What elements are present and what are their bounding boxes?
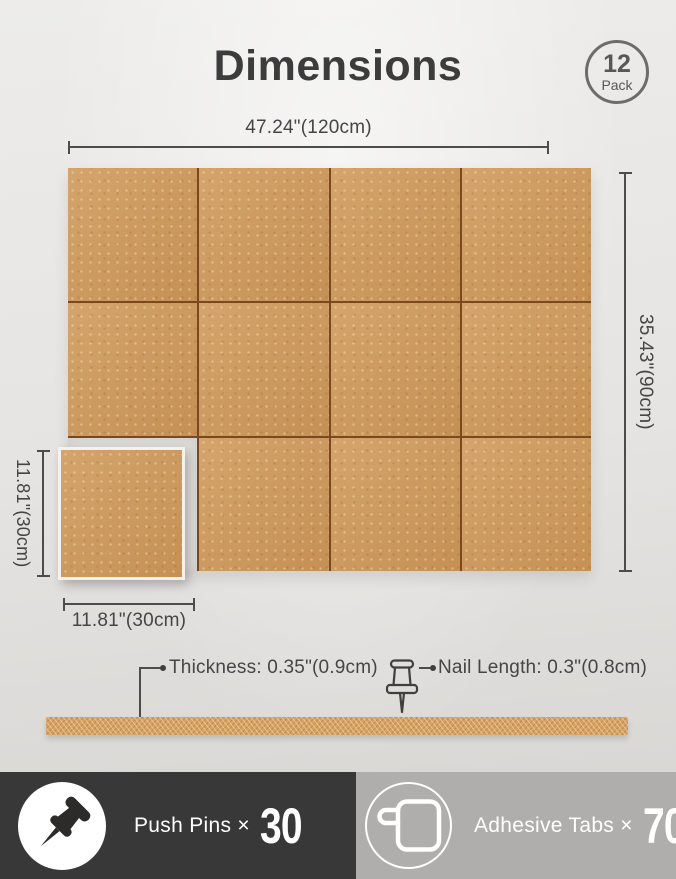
- cork-tile: [462, 438, 591, 571]
- push-pin-outline-icon: [382, 659, 422, 719]
- push-pin-icon-circle: [18, 782, 106, 870]
- cork-tile: [199, 303, 328, 436]
- cork-tile: [462, 303, 591, 436]
- tile-height-label: 11.81"(30cm): [12, 450, 33, 577]
- cork-tile: [331, 168, 460, 301]
- push-pins-section: Push Pins × 30: [0, 772, 356, 879]
- board-width-label: 47.24"(120cm): [68, 117, 549, 139]
- cork-tile: [462, 168, 591, 301]
- board-width-dimension-line: [68, 146, 549, 148]
- included-items-bar: Push Pins × 30 Adhesive Tabs × 70: [0, 772, 676, 879]
- tile-width-label: 11.81"(30cm): [39, 610, 219, 632]
- cork-strip-side-view: [46, 717, 628, 735]
- adhesive-tabs-count: 70: [643, 801, 676, 851]
- adhesive-tab-icon: [376, 799, 442, 853]
- thickness-leader-dot: [160, 665, 166, 671]
- thickness-leader-line: [139, 667, 161, 669]
- nail-length-label: Nail Length: 0.3"(0.8cm): [438, 657, 647, 679]
- cork-tile: [331, 438, 460, 571]
- nail-leader-dot: [430, 665, 436, 671]
- pack-label: Pack: [601, 78, 632, 92]
- push-pins-count: 30: [260, 801, 302, 851]
- page-title: Dimensions: [0, 42, 676, 91]
- cork-tile: [199, 438, 328, 571]
- cork-tile: [199, 168, 328, 301]
- cork-tile: [331, 303, 460, 436]
- tile-height-dimension-line: [42, 450, 44, 577]
- adhesive-tab-icon-circle: [365, 782, 452, 869]
- thickness-leader-line: [139, 668, 141, 719]
- thickness-label: Thickness: 0.35"(0.9cm): [169, 657, 378, 679]
- board-height-label: 35.43"(90cm): [634, 172, 656, 572]
- adhesive-tabs-section: Adhesive Tabs × 70: [356, 772, 676, 879]
- pack-count: 12: [603, 52, 631, 77]
- adhesive-tabs-label: Adhesive Tabs ×: [474, 814, 633, 838]
- push-pin-icon: [30, 794, 94, 858]
- board-height-dimension-line: [624, 172, 626, 572]
- single-cork-tile: [58, 447, 185, 580]
- cork-tile: [68, 303, 197, 436]
- product-dimensions-image: Dimensions 12 Pack 47.24"(120cm) 35.43"(…: [0, 0, 676, 879]
- tile-width-dimension-line: [63, 603, 195, 605]
- pack-count-badge: 12 Pack: [585, 40, 649, 104]
- cork-tile: [68, 168, 197, 301]
- push-pins-label: Push Pins ×: [134, 814, 250, 838]
